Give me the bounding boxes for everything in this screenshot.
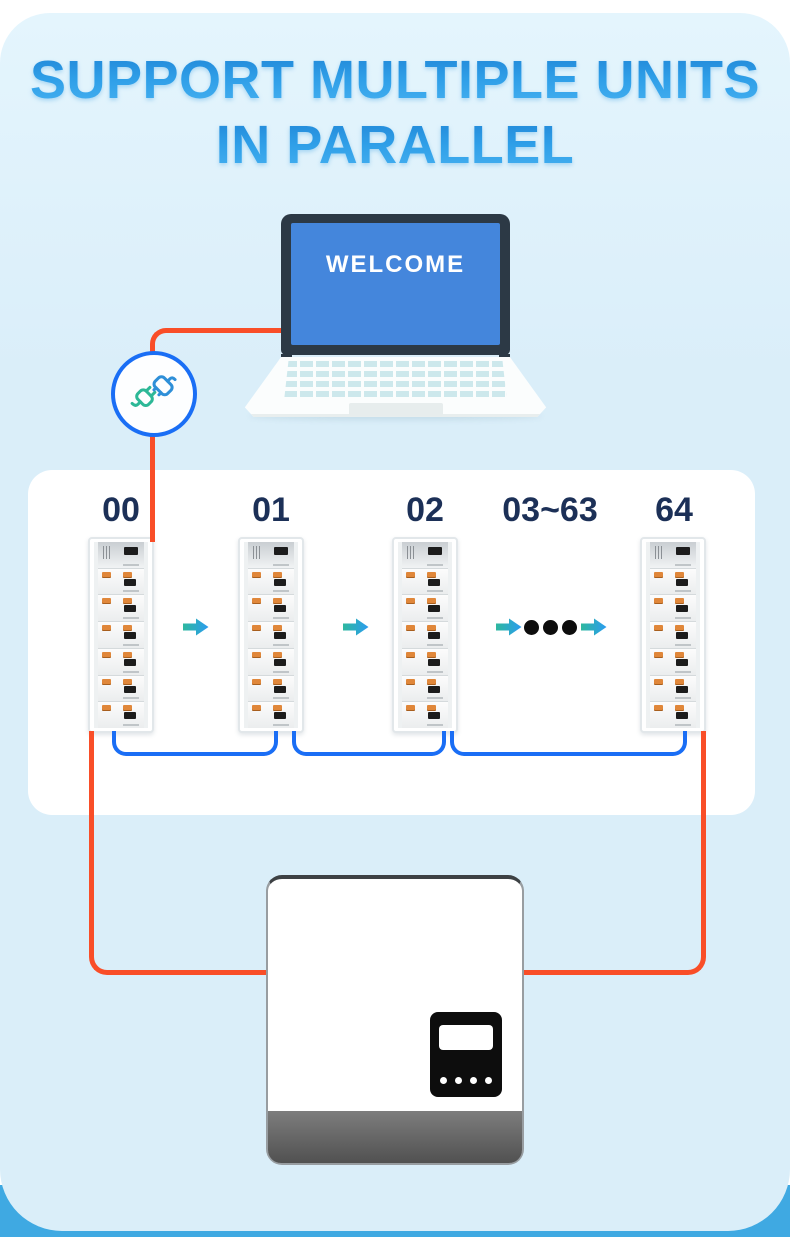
- laptop-touchpad: [349, 403, 443, 416]
- page-canvas: SUPPORT MULTIPLE UNITS IN PARALLEL: [0, 0, 790, 1237]
- arrow-right-icon: [343, 617, 369, 637]
- battery-cabinet: [88, 537, 154, 733]
- arrow-right-icon: [581, 617, 607, 637]
- ellipsis-dots: [524, 620, 577, 635]
- wire-left-battery-to-inverter-orange: [89, 731, 275, 975]
- plug-connector-icon: [126, 366, 182, 422]
- laptop: WELCOME: [243, 214, 548, 419]
- arrow-right-icon: [496, 617, 522, 637]
- unit-label-range-03-63: 03~63: [502, 492, 598, 528]
- battery-cabinet: [238, 537, 304, 733]
- unit-label-00: 00: [102, 492, 140, 528]
- battery-cabinet: [392, 537, 458, 733]
- welcome-text: WELCOME: [291, 251, 500, 279]
- parallel-link-bracket: [450, 731, 687, 756]
- laptop-screen: WELCOME: [291, 223, 500, 345]
- plug-badge: [111, 351, 197, 437]
- battery-cabinet: [640, 537, 706, 733]
- unit-label-02: 02: [406, 492, 444, 528]
- laptop-keyboard: [284, 361, 507, 401]
- page-title: SUPPORT MULTIPLE UNITS IN PARALLEL: [0, 48, 790, 178]
- laptop-base: [243, 357, 548, 417]
- inverter: [266, 875, 524, 1165]
- inverter-buttons: [440, 1077, 492, 1084]
- inverter-control-panel: [430, 1012, 502, 1097]
- parallel-link-bracket: [112, 731, 278, 756]
- laptop-bezel: WELCOME: [281, 214, 510, 355]
- parallel-link-bracket: [292, 731, 446, 756]
- unit-label-64: 64: [655, 492, 693, 528]
- inverter-display: [439, 1025, 493, 1050]
- arrow-right-icon: [183, 617, 209, 637]
- title-line-1: SUPPORT MULTIPLE UNITS: [0, 48, 790, 113]
- inverter-base: [268, 1111, 522, 1163]
- title-line-2: IN PARALLEL: [0, 113, 790, 178]
- wire-right-battery-to-inverter-orange: [516, 731, 706, 975]
